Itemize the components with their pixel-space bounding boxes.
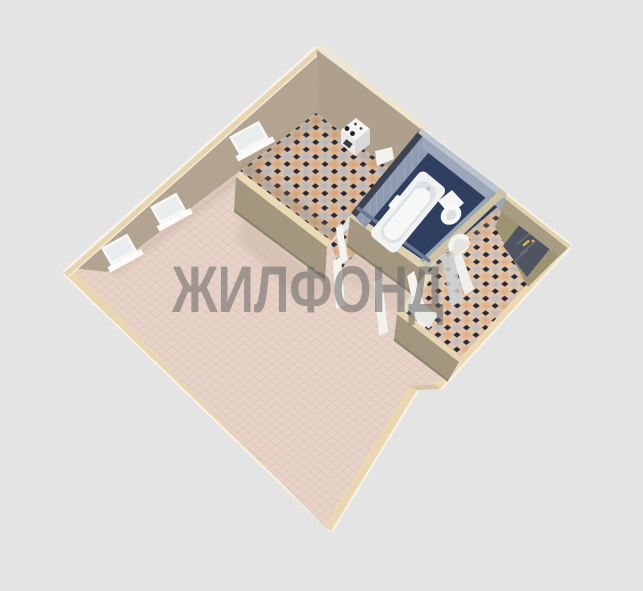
svg-text:ЖИЛФОНД: ЖИЛФОНД (171, 252, 444, 326)
